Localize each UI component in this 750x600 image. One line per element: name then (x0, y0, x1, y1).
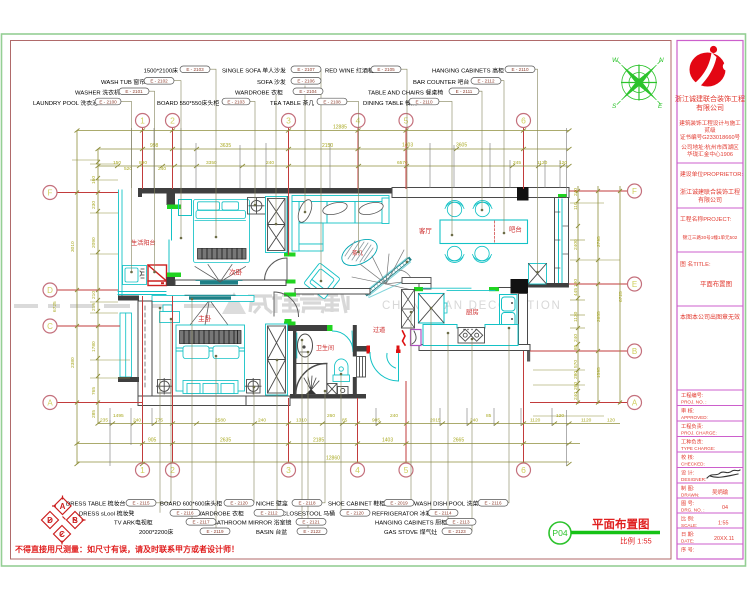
svg-text:E - 2118: E - 2118 (298, 501, 315, 506)
svg-text:2015: 2015 (430, 418, 441, 424)
svg-text:E - 2123: E - 2123 (448, 529, 466, 534)
svg-text:120: 120 (607, 418, 615, 424)
svg-text:DRAWN:: DRAWN: (681, 493, 699, 498)
svg-text:E - 2103: E - 2103 (227, 99, 245, 104)
svg-text:HANGING CABINETS 高柜: HANGING CABINETS 高柜 (432, 67, 504, 75)
svg-text:E - 2107: E - 2107 (297, 67, 315, 72)
svg-text:260: 260 (573, 382, 579, 390)
svg-text:120: 120 (559, 160, 567, 166)
svg-text:DRESS sLool 梳妆凳: DRESS sLool 梳妆凳 (79, 510, 134, 518)
svg-text:PROJ. NO. :: PROJ. NO. : (681, 400, 707, 405)
svg-text:1780: 1780 (91, 341, 97, 352)
svg-text:制 图:: 制 图: (681, 484, 694, 492)
svg-text:1120: 1120 (530, 418, 541, 424)
svg-text:2: 2 (170, 116, 175, 126)
svg-text:F: F (632, 187, 637, 196)
svg-text:次卧: 次卧 (229, 268, 243, 277)
svg-text:12885: 12885 (333, 125, 347, 131)
svg-text:6725: 6725 (618, 291, 624, 302)
svg-text:905: 905 (148, 438, 157, 444)
svg-text:比例 1:55: 比例 1:55 (620, 536, 652, 546)
svg-text:E - 2116: E - 2116 (484, 501, 501, 506)
svg-text:浙江诚建联合装饰工程: 浙江诚建联合装饰工程 (675, 94, 745, 103)
svg-text:E - 2110: E - 2110 (511, 67, 528, 72)
svg-text:1:55: 1:55 (718, 521, 729, 527)
svg-text:BOARD 600*600床头柜: BOARD 600*600床头柜 (160, 500, 222, 508)
svg-text:4: 4 (355, 465, 360, 475)
svg-text:E - 2120: E - 2120 (346, 511, 364, 516)
svg-text:3: 3 (286, 116, 291, 126)
svg-text:吴炳瑜: 吴炳瑜 (712, 488, 729, 496)
svg-text:平面布置图: 平面布置图 (700, 279, 732, 288)
svg-text:E - 2103: E - 2103 (186, 67, 204, 72)
svg-text:BATHROOM MIRROR 浴室镜: BATHROOM MIRROR 浴室镜 (213, 519, 292, 527)
svg-text:3: 3 (286, 465, 291, 475)
svg-text:平面布置图: 平面布置图 (592, 517, 650, 531)
svg-text:2655: 2655 (596, 311, 602, 322)
svg-text:5: 5 (404, 465, 409, 475)
svg-text:2090: 2090 (91, 237, 97, 248)
svg-text:E - 2108: E - 2108 (323, 99, 341, 104)
svg-text:WARDROBE 衣柜: WARDROBE 衣柜 (196, 510, 244, 518)
svg-text:有限公司: 有限公司 (698, 196, 722, 204)
svg-text:BOARD 550*550床头柜: BOARD 550*550床头柜 (157, 99, 219, 107)
svg-text:TEA TABLE 茶几: TEA TABLE 茶几 (270, 99, 314, 107)
svg-text:85: 85 (342, 418, 348, 424)
svg-text:校 核:: 校 核: (681, 453, 694, 461)
svg-text:280: 280 (573, 371, 579, 379)
svg-text:A: A (47, 399, 53, 408)
svg-text:工程名称PROJECT:: 工程名称PROJECT: (680, 215, 732, 223)
svg-text:4: 4 (356, 116, 361, 126)
svg-text:240: 240 (133, 418, 141, 424)
svg-text:CLOSESTOOL 马桶: CLOSESTOOL 马桶 (282, 510, 335, 518)
svg-text:设 计:: 设 计: (681, 469, 694, 477)
svg-text:S: S (612, 103, 617, 110)
svg-text:570: 570 (573, 360, 579, 368)
svg-text:建筑装饰工程设计与施工: 建筑装饰工程设计与施工 (679, 119, 741, 127)
svg-text:E - 2115: E - 2115 (132, 501, 149, 506)
svg-text:E - 2111: E - 2111 (456, 89, 473, 94)
svg-text:1403: 1403 (402, 143, 413, 149)
svg-text:本图本公司出图章无效: 本图本公司出图章无效 (680, 313, 740, 321)
svg-text:GAS STOVE 煤气灶: GAS STOVE 煤气灶 (384, 528, 437, 536)
svg-text:240: 240 (573, 188, 579, 196)
svg-text:215: 215 (91, 303, 97, 311)
svg-text:BASIN 台盆: BASIN 台盆 (256, 528, 287, 536)
svg-text:20XX.11: 20XX.11 (714, 536, 734, 542)
svg-text:E - 2112: E - 2112 (477, 79, 494, 84)
svg-text:工程负责:: 工程负责: (681, 422, 703, 430)
svg-text:A: A (632, 399, 638, 408)
svg-text:240: 240 (158, 166, 166, 172)
svg-text:520: 520 (124, 166, 132, 172)
svg-text:D: D (47, 286, 53, 295)
svg-text:240: 240 (573, 392, 579, 400)
svg-text:F: F (48, 189, 53, 198)
svg-text:765: 765 (91, 387, 97, 395)
svg-text:序 号:: 序 号: (681, 546, 694, 554)
svg-text:E - 2104: E - 2104 (299, 89, 317, 94)
svg-text:1495: 1495 (113, 413, 124, 419)
svg-text:260: 260 (327, 413, 335, 419)
svg-text:285: 285 (91, 410, 97, 418)
svg-text:APPROVED:: APPROVED: (681, 415, 708, 420)
svg-text:CHECKED:: CHECKED: (681, 462, 705, 467)
svg-text:3350: 3350 (206, 160, 217, 166)
svg-text:B: B (632, 347, 637, 356)
svg-text:E - 2116: E - 2116 (176, 511, 193, 516)
svg-text:锦江三路30号1幢1单元502: 锦江三路30号1幢1单元502 (683, 234, 738, 241)
svg-text:445: 445 (573, 288, 579, 296)
svg-text:NICHE 壁龛: NICHE 壁龛 (256, 500, 288, 508)
svg-text:235: 235 (100, 418, 108, 424)
svg-text:TV ARK电视柜: TV ARK电视柜 (114, 519, 153, 527)
svg-text:N: N (659, 57, 664, 64)
svg-text:245: 245 (513, 160, 521, 166)
svg-text:图 名TITLE:: 图 名TITLE: (680, 260, 711, 268)
svg-text:E - 2114: E - 2114 (434, 511, 451, 516)
svg-text:12860: 12860 (326, 456, 340, 462)
svg-text:2150: 2150 (322, 143, 333, 149)
svg-text:客厅: 客厅 (419, 226, 432, 235)
svg-text:PROJ. CHARGE:: PROJ. CHARGE: (681, 431, 717, 436)
svg-text:图 号:: 图 号: (681, 500, 694, 507)
svg-text:LAUNDRY POOL 洗衣池: LAUNDRY POOL 洗衣池 (33, 99, 98, 107)
svg-text:SINGLE SOFA 单人沙发: SINGLE SOFA 单人沙发 (222, 67, 286, 75)
svg-text:E - 2101: E - 2101 (125, 89, 143, 94)
svg-text:E: E (658, 103, 663, 110)
svg-text:过道: 过道 (373, 326, 385, 334)
svg-text:240: 240 (258, 418, 266, 424)
svg-text:吧台: 吧台 (509, 225, 522, 234)
svg-text:工种负责:: 工种负责: (681, 438, 703, 446)
svg-text:E - 2102: E - 2102 (150, 79, 168, 84)
svg-text:85: 85 (486, 413, 492, 419)
svg-text:1: 1 (140, 465, 145, 475)
svg-text:DESIGNER:: DESIGNER: (681, 477, 706, 482)
svg-text:6: 6 (521, 116, 526, 126)
svg-text:1403: 1403 (382, 438, 393, 444)
svg-text:230: 230 (91, 201, 97, 209)
svg-text:3605: 3605 (456, 143, 467, 149)
svg-text:WARDROBE 衣柜: WARDROBE 衣柜 (235, 89, 283, 97)
svg-text:1120: 1120 (581, 418, 592, 424)
svg-text:2580: 2580 (215, 418, 226, 424)
svg-text:1500*2100床: 1500*2100床 (144, 67, 179, 75)
svg-text:6: 6 (521, 465, 526, 475)
svg-text:P04: P04 (552, 528, 568, 538)
svg-text:华珑汇金中心1906: 华珑汇金中心1906 (687, 150, 733, 158)
svg-text:6570: 6570 (397, 160, 408, 166)
svg-text:SOFA 沙发: SOFA 沙发 (257, 78, 286, 86)
svg-text:110: 110 (573, 202, 579, 210)
svg-text:DRG. NO. :: DRG. NO. : (681, 508, 704, 513)
svg-text:04: 04 (722, 505, 728, 511)
svg-text:E - 2121: E - 2121 (302, 520, 320, 525)
svg-text:3635: 3635 (220, 143, 231, 149)
svg-text:C: C (59, 530, 65, 539)
svg-text:DRESS TABLE 梳妆台: DRESS TABLE 梳妆台 (66, 500, 125, 508)
svg-text:审 核:: 审 核: (681, 407, 694, 415)
svg-text:RED WINE 红酒柜: RED WINE 红酒柜 (325, 67, 374, 75)
svg-text:A: A (60, 502, 66, 511)
svg-text:2400: 2400 (573, 239, 579, 250)
svg-text:证书编号G233018660号: 证书编号G233018660号 (680, 133, 741, 141)
svg-text:210: 210 (91, 291, 97, 299)
svg-text:2635: 2635 (220, 438, 231, 444)
svg-text:E: E (632, 280, 637, 289)
svg-text:BAR COUNTER 吧台: BAR COUNTER 吧台 (413, 78, 469, 86)
svg-text:890: 890 (139, 160, 147, 166)
svg-text:建设单位PROPRIETOR:: 建设单位PROPRIETOR: (680, 170, 743, 178)
svg-text:卫生间: 卫生间 (316, 344, 334, 352)
svg-text:150: 150 (113, 160, 121, 166)
svg-text:不得直接用尺测量：如尺寸有误，请及时联系甲方或者设计师！: 不得直接用尺测量：如尺寸有误，请及时联系甲方或者设计师！ (15, 544, 239, 554)
svg-text:WASH TUB 窗帘: WASH TUB 窗帘 (101, 78, 145, 86)
svg-text:905: 905 (372, 418, 380, 424)
svg-text:生活阳台: 生活阳台 (131, 239, 156, 247)
svg-text:1: 1 (140, 116, 145, 126)
svg-text:2795: 2795 (596, 236, 602, 247)
svg-text:E - 2122: E - 2122 (303, 529, 321, 534)
svg-text:TYPE CHARGE:: TYPE CHARGE: (681, 446, 715, 451)
svg-text:厨房: 厨房 (466, 307, 479, 316)
svg-text:贰级: 贰级 (704, 126, 716, 134)
svg-text:E - 2105: E - 2105 (377, 67, 395, 72)
svg-text:SHOE CABINET 鞋柜: SHOE CABINET 鞋柜 (328, 500, 385, 508)
svg-text:240: 240 (390, 413, 398, 419)
svg-text:130: 130 (573, 279, 579, 287)
svg-text:2665: 2665 (453, 438, 464, 444)
svg-text:C: C (47, 322, 53, 331)
svg-text:1120: 1120 (537, 160, 548, 166)
svg-text:E - 2100: E - 2100 (99, 99, 117, 104)
svg-text:HANGING CABINETS 厨柜: HANGING CABINETS 厨柜 (375, 519, 447, 527)
svg-text:E - 2110: E - 2110 (415, 99, 432, 104)
svg-text:1310: 1310 (296, 418, 307, 424)
svg-text:WASH DISH POOL 洗菜池: WASH DISH POOL 洗菜池 (414, 500, 484, 508)
svg-text:公司地址:杭州市西湖区: 公司地址:杭州市西湖区 (681, 143, 739, 151)
svg-text:240: 240 (266, 160, 274, 166)
svg-text:2185: 2185 (313, 438, 324, 444)
svg-text:775: 775 (155, 418, 163, 424)
svg-text:E - 2113: E - 2113 (452, 520, 469, 525)
svg-text:DATE:: DATE: (681, 539, 694, 544)
svg-text:2380: 2380 (70, 357, 76, 368)
svg-text:E - 2120: E - 2120 (230, 501, 248, 506)
svg-text:WASHER 洗衣机: WASHER 洗衣机 (75, 89, 120, 97)
svg-text:85: 85 (573, 344, 579, 350)
svg-text:D: D (47, 516, 53, 525)
svg-text:E - 2112: E - 2112 (260, 511, 277, 516)
svg-text:6725: 6725 (52, 301, 58, 312)
svg-text:比 例:: 比 例: (681, 515, 694, 523)
svg-text:有限公司: 有限公司 (696, 103, 724, 112)
svg-text:240: 240 (470, 418, 478, 424)
svg-text:TABLE AND CHAIRS 餐桌椅: TABLE AND CHAIRS 餐桌椅 (368, 89, 443, 97)
svg-text:E - 2117: E - 2117 (192, 520, 209, 525)
svg-text:E - 2119: E - 2119 (206, 529, 223, 534)
svg-text:1595: 1595 (596, 367, 602, 378)
svg-text:B: B (72, 516, 78, 525)
svg-text:1130: 1130 (573, 311, 579, 322)
svg-text:120: 120 (556, 413, 564, 419)
svg-text:主卧: 主卧 (198, 314, 212, 323)
svg-text:E - 2019: E - 2019 (390, 501, 408, 506)
svg-text:浙江诚建联合装饰工程: 浙江诚建联合装饰工程 (680, 188, 740, 196)
svg-text:240: 240 (573, 334, 579, 342)
svg-text:工程编号:: 工程编号: (681, 391, 703, 399)
svg-text:5: 5 (404, 116, 409, 126)
svg-text:SCALE:: SCALE: (681, 523, 697, 528)
svg-text:3010: 3010 (70, 241, 76, 252)
svg-text:W: W (612, 57, 619, 64)
svg-text:REFRIGERATOR 冰箱: REFRIGERATOR 冰箱 (372, 510, 432, 518)
svg-text:日 期:: 日 期: (681, 531, 694, 538)
svg-text:2000*2200床: 2000*2200床 (139, 528, 174, 536)
svg-text:E - 2106: E - 2106 (297, 79, 315, 84)
svg-text:160: 160 (91, 176, 97, 184)
